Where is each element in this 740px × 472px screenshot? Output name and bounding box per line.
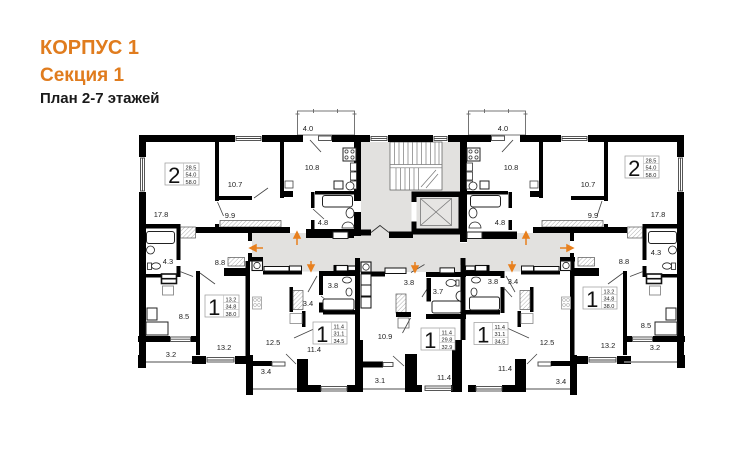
svg-text:9.9: 9.9 [225, 211, 235, 220]
svg-text:1: 1 [477, 323, 489, 348]
svg-text:Секция 1: Секция 1 [40, 65, 125, 86]
svg-text:8.8: 8.8 [215, 258, 225, 267]
svg-text:3.7: 3.7 [433, 287, 443, 296]
svg-text:3.8: 3.8 [488, 277, 498, 286]
svg-text:8.5: 8.5 [641, 321, 651, 330]
svg-text:38.0: 38.0 [226, 312, 237, 318]
svg-text:31.1: 31.1 [334, 332, 345, 338]
svg-text:4.8: 4.8 [318, 218, 328, 227]
svg-text:4.3: 4.3 [651, 248, 661, 257]
svg-text:13.2: 13.2 [226, 297, 237, 303]
svg-text:1: 1 [586, 287, 598, 312]
svg-text:10.7: 10.7 [228, 180, 243, 189]
svg-text:4.3: 4.3 [163, 257, 173, 266]
svg-text:58.0: 58.0 [186, 180, 197, 186]
svg-text:10.8: 10.8 [305, 163, 320, 172]
svg-text:3.8: 3.8 [328, 281, 338, 290]
svg-text:3.1: 3.1 [375, 376, 385, 385]
svg-text:12.5: 12.5 [540, 338, 555, 347]
svg-text:54.0: 54.0 [646, 166, 657, 172]
svg-text:8.8: 8.8 [619, 257, 629, 266]
svg-text:28.5: 28.5 [186, 165, 197, 171]
svg-text:34.8: 34.8 [226, 305, 237, 311]
svg-text:4.0: 4.0 [498, 124, 508, 133]
svg-text:38.0: 38.0 [604, 304, 615, 310]
svg-text:1: 1 [424, 328, 436, 353]
svg-text:54.0: 54.0 [186, 173, 197, 179]
svg-text:10.7: 10.7 [581, 180, 596, 189]
svg-text:29.8: 29.8 [442, 338, 453, 344]
svg-text:13.2: 13.2 [601, 341, 616, 350]
svg-text:10.9: 10.9 [378, 332, 393, 341]
svg-text:11.4: 11.4 [334, 324, 344, 330]
svg-text:2: 2 [168, 163, 180, 188]
svg-text:4.8: 4.8 [495, 218, 505, 227]
svg-text:58.0: 58.0 [646, 173, 657, 179]
svg-text:34.8: 34.8 [604, 297, 615, 303]
svg-text:31.1: 31.1 [495, 332, 506, 338]
svg-text:17.8: 17.8 [651, 210, 666, 219]
svg-text:11.4: 11.4 [442, 330, 452, 336]
svg-text:13.2: 13.2 [217, 343, 232, 352]
svg-text:3.2: 3.2 [166, 350, 176, 359]
svg-text:34.5: 34.5 [334, 339, 345, 345]
svg-text:11.4: 11.4 [437, 373, 451, 382]
svg-text:1: 1 [316, 322, 328, 347]
svg-text:1: 1 [208, 295, 220, 320]
svg-text:3.4: 3.4 [261, 367, 271, 376]
svg-text:КОРПУС 1: КОРПУС 1 [40, 37, 139, 59]
svg-text:3.2: 3.2 [650, 343, 660, 352]
svg-text:11.4: 11.4 [495, 325, 505, 331]
svg-text:План 2-7 этажей: План 2-7 этажей [40, 90, 160, 107]
svg-text:32.9: 32.9 [442, 345, 453, 351]
svg-text:9.9: 9.9 [588, 211, 598, 220]
svg-text:13.2: 13.2 [604, 289, 615, 295]
svg-text:12.5: 12.5 [266, 338, 281, 347]
svg-text:3.4: 3.4 [556, 377, 566, 386]
svg-text:3.8: 3.8 [404, 278, 414, 287]
svg-text:34.5: 34.5 [495, 339, 506, 345]
svg-text:11.4: 11.4 [498, 364, 512, 373]
svg-text:4.0: 4.0 [303, 124, 313, 133]
svg-text:28.5: 28.5 [646, 158, 657, 164]
svg-text:17.8: 17.8 [154, 210, 169, 219]
svg-text:10.8: 10.8 [504, 163, 519, 172]
svg-text:2: 2 [628, 156, 640, 181]
svg-text:8.5: 8.5 [179, 312, 189, 321]
svg-text:3.4: 3.4 [303, 299, 313, 308]
